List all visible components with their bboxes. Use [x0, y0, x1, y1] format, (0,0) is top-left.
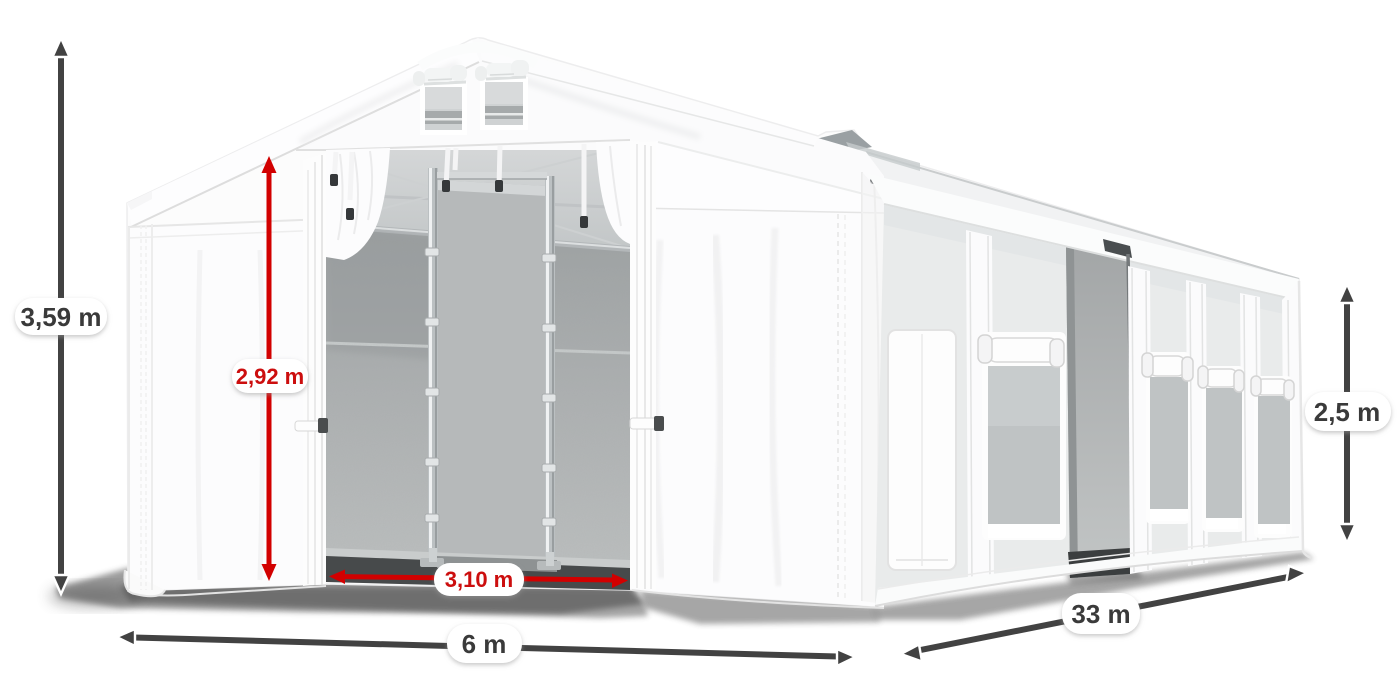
svg-text:6 m: 6 m — [462, 629, 507, 659]
svg-text:3,10 m: 3,10 m — [445, 567, 514, 592]
svg-text:2,5 m: 2,5 m — [1314, 397, 1381, 427]
svg-text:3,59 m: 3,59 m — [21, 302, 102, 332]
svg-text:2,92 m: 2,92 m — [236, 364, 305, 389]
svg-text:33 m: 33 m — [1071, 599, 1130, 629]
